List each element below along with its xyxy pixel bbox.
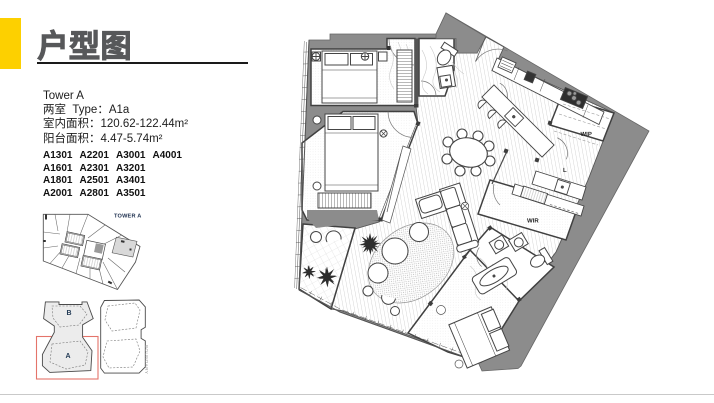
svg-text:L: L [563,168,567,174]
svg-text:WIP: WIP [580,132,591,138]
svg-text:WIR: WIR [527,219,539,225]
